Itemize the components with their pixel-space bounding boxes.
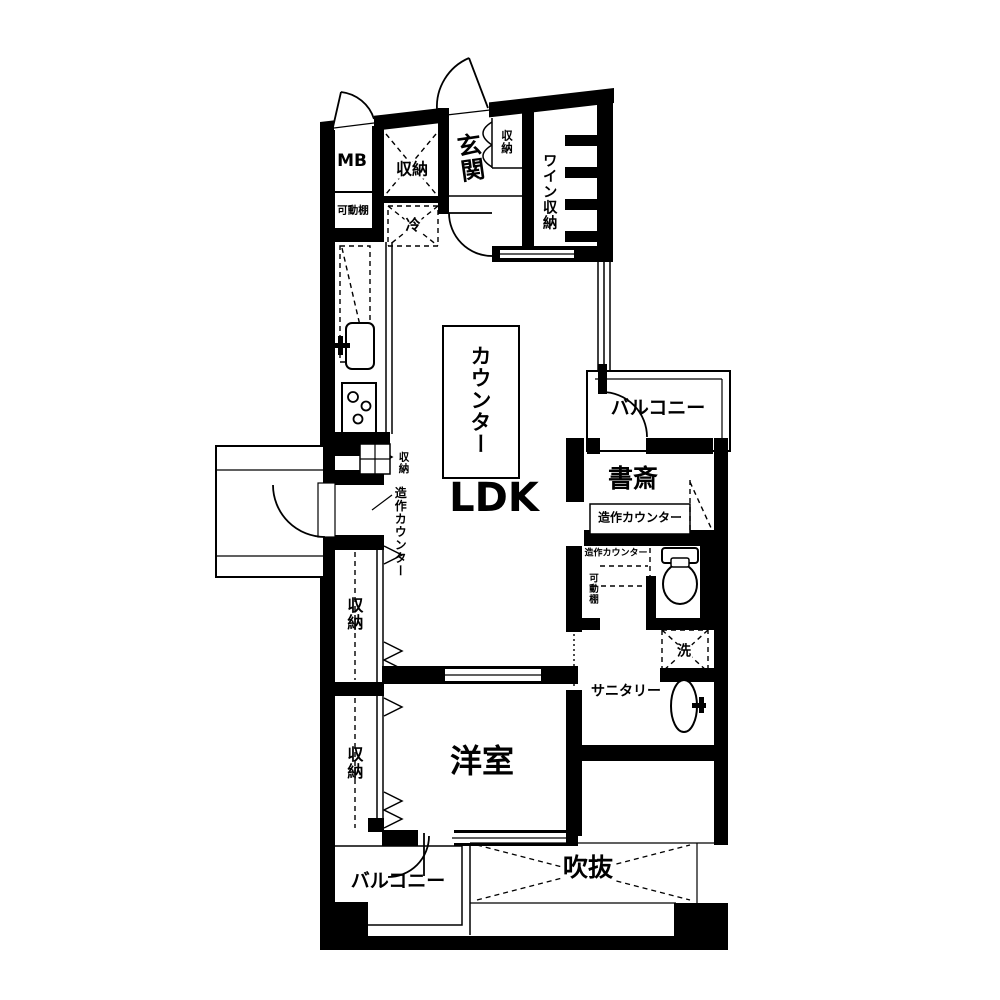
label-movable-shelf: 可動棚 (337, 205, 369, 216)
label-sanitary: サニタリー (591, 685, 661, 700)
label-counter: カウンター (469, 345, 491, 455)
wine-rack-shelves (565, 135, 597, 242)
label-built-in-counter-left: 造作カウンター (394, 487, 407, 578)
label-built-in-counter-small: 造作カウンター (584, 549, 647, 558)
washbasin-icon (671, 680, 706, 732)
label-wine-storage: ワイン収納 (540, 153, 555, 231)
label-balcony-bottom: バルコニー (351, 872, 446, 892)
label-built-in-counter-study: 造作カウンター (598, 512, 682, 525)
label-movable-shelf-small: 可動棚 (587, 573, 597, 605)
label-washer: 洗 (676, 645, 692, 660)
label-western-room: 洋室 (450, 745, 514, 779)
label-entrance-storage: 収納 (501, 130, 513, 155)
label-mb: MB (337, 153, 367, 171)
label-void: 吹抜 (562, 855, 614, 881)
label-study: 書斎 (608, 466, 658, 492)
floor-plan: MB 可動棚 収納 冷 玄関 収納 ワイン収納 カウンター LDK 収納 造作カ… (0, 0, 1000, 1000)
label-entrance: 玄関 (452, 131, 484, 184)
label-kitchen-storage: 収納 (397, 452, 408, 475)
label-closet-lower: 収納 (345, 746, 362, 780)
label-balcony-right: バルコニー (611, 399, 706, 419)
label-ldk: LDK (449, 477, 539, 519)
label-entry-storage: 収納 (395, 162, 429, 179)
label-closet-upper: 収納 (345, 597, 362, 631)
toilet-icon (662, 548, 698, 604)
label-fridge: 冷 (404, 218, 421, 234)
hatch-icon (360, 444, 390, 474)
bifold-door-icon (483, 122, 492, 167)
stove-icon (342, 383, 376, 433)
